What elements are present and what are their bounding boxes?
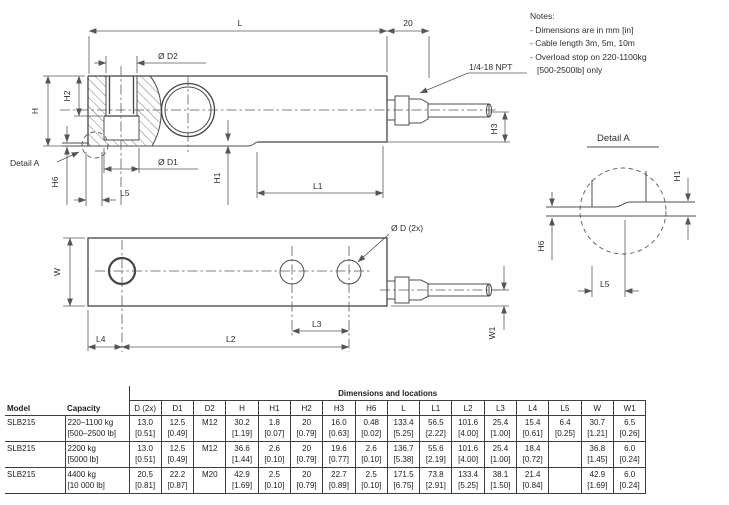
top-view: Ø D (2x) W L4 L2 L3 W1 (52, 223, 509, 352)
dim-label-W: W (52, 268, 62, 276)
value-cell: 36.6[1.44] (226, 442, 258, 468)
detail-a-title: Detail A (597, 133, 630, 144)
value-cell: 20[0.79] (290, 442, 322, 468)
dim-label-H3: H3 (489, 123, 499, 134)
column-header: D1 (161, 401, 193, 416)
value-cell: 20[0.79] (290, 468, 322, 494)
column-header: L1 (420, 401, 452, 416)
notes-title: Notes: (530, 10, 725, 24)
value-cell (549, 442, 581, 468)
column-header: W1 (613, 401, 645, 416)
value-cell: 73.8[2.91] (420, 468, 452, 494)
model-cell: SLB215 (5, 416, 65, 442)
value-cell: 13.0[0.51] (129, 416, 161, 442)
dim-label-W1: W1 (487, 326, 497, 339)
column-header: L (387, 401, 419, 416)
value-cell: 20[0.79] (290, 416, 322, 442)
column-header: L2 (452, 401, 484, 416)
dim-label-D2: Ø D2 (158, 51, 178, 61)
value-cell: 20.5[0.81] (129, 468, 161, 494)
value-cell (549, 468, 581, 494)
dim-label-L: L (238, 18, 243, 28)
value-cell: 1.8[0.07] (258, 416, 290, 442)
value-cell: M20 (194, 468, 226, 494)
npt-label: 1/4-18 NPT (469, 62, 512, 72)
value-cell: 171.5[6.75] (387, 468, 419, 494)
value-cell: 42.9[1.69] (226, 468, 258, 494)
detail-a-view: Detail A H1 H6 L5 (536, 133, 696, 297)
table-span-row: Dimensions and locations (5, 386, 646, 401)
capacity-cell: 2200 kg[5000 lb] (65, 442, 129, 468)
value-cell: 22.7[0.89] (323, 468, 355, 494)
column-header: H (226, 401, 258, 416)
dim-label-D2x: Ø D (2x) (391, 223, 423, 233)
dim-label-L2: L2 (226, 334, 236, 344)
cable-gland-side (387, 96, 492, 125)
note-line: [500-2500lb] only (530, 64, 725, 78)
dim-label-H6: H6 (50, 176, 60, 187)
detail-boundary-circle (580, 168, 666, 254)
detail-dim-label-H6: H6 (536, 240, 546, 251)
value-cell: 6.0[0.24] (613, 468, 645, 494)
value-cell: 133.4[5.25] (387, 416, 419, 442)
value-cell: 6.0[0.24] (613, 442, 645, 468)
column-header: H6 (355, 401, 387, 416)
dim-label-20: 20 (403, 18, 413, 28)
value-cell: M12 (194, 442, 226, 468)
column-header: D (2x) (129, 401, 161, 416)
span-spacer (5, 386, 129, 401)
value-cell: 30.2[1.19] (226, 416, 258, 442)
note-line: - Cable length 3m, 5m, 10m (530, 37, 725, 51)
side-view: L 20 Ø D2 H H2 H6 L5 Ø D1 (10, 18, 527, 206)
column-header: H1 (258, 401, 290, 416)
column-header: H3 (323, 401, 355, 416)
dim-label-D1: Ø D1 (158, 157, 178, 167)
notes-block: Notes: - Dimensions are in mm [in] - Cab… (530, 10, 725, 78)
model-cell: SLB215 (5, 442, 65, 468)
value-cell: 21.4[0.84] (517, 468, 549, 494)
value-cell: 136.7[5.38] (387, 442, 419, 468)
dim-label-H2: H2 (62, 90, 72, 101)
note-line: - Dimensions are in mm [in] (530, 24, 725, 38)
engineering-drawing-page: L 20 Ø D2 H H2 H6 L5 Ø D1 (0, 0, 729, 505)
detail-a-reference-label: Detail A (10, 158, 40, 168)
value-cell: 6.5[0.26] (613, 416, 645, 442)
value-cell: 12.5[0.49] (161, 442, 193, 468)
dim-label-L1: L1 (313, 181, 323, 191)
value-cell: 133.4[5.25] (452, 468, 484, 494)
span-header: Dimensions and locations (129, 386, 646, 401)
value-cell: 42.9[1.69] (581, 468, 613, 494)
value-cell: 16.0[0.63] (323, 416, 355, 442)
table-row: SLB215 4400 kg[10 000 lb]20.5[0.81]22.2[… (5, 468, 646, 494)
value-cell: 6.4[0.25] (549, 416, 581, 442)
value-cell: 101.6[4.00] (452, 442, 484, 468)
value-cell: 2.5[0.10] (258, 468, 290, 494)
value-cell: 101.6[4.00] (452, 416, 484, 442)
value-cell: 36.8[1.45] (581, 442, 613, 468)
column-header: L5 (549, 401, 581, 416)
detail-dim-label-L5: L5 (600, 279, 610, 289)
value-cell: 38.1[1.50] (484, 468, 516, 494)
detail-dim-label-H1: H1 (672, 170, 682, 181)
table-row: SLB215 220–1100 kg[500–2500 lb]13.0[0.51… (5, 416, 646, 442)
value-cell: 19.6[0.77] (323, 442, 355, 468)
column-header: H2 (290, 401, 322, 416)
column-header: L4 (517, 401, 549, 416)
note-line: - Overload stop on 220-1100kg (530, 51, 725, 65)
value-cell: 13.0[0.51] (129, 442, 161, 468)
dim-label-L4: L4 (96, 334, 106, 344)
dim-label-H1: H1 (212, 172, 222, 183)
dim-label-L5: L5 (120, 188, 130, 198)
value-cell: M12 (194, 416, 226, 442)
column-header: W (581, 401, 613, 416)
value-cell: 0.48[0.02] (355, 416, 387, 442)
value-cell: 15.4[0.61] (517, 416, 549, 442)
table-header-row: ModelCapacityD (2x)D1D2HH1H2H3H6LL1L2L3L… (5, 401, 646, 416)
value-cell: 25.4[1.00] (484, 442, 516, 468)
dim-label-H: H (30, 108, 40, 114)
value-cell: 55.6[2.19] (420, 442, 452, 468)
dim-label-L3: L3 (312, 319, 322, 329)
value-cell: 2.5[0.10] (355, 468, 387, 494)
capacity-cell: 4400 kg[10 000 lb] (65, 468, 129, 494)
value-cell: 25.4[1.00] (484, 416, 516, 442)
model-cell: SLB215 (5, 468, 65, 494)
column-header: L3 (484, 401, 516, 416)
value-cell: 12.5[0.49] (161, 416, 193, 442)
value-cell: 2.6[0.10] (258, 442, 290, 468)
table-row: SLB215 2200 kg[5000 lb]13.0[0.51]12.5[0.… (5, 442, 646, 468)
column-header: D2 (194, 401, 226, 416)
capacity-cell: 220–1100 kg[500–2500 lb] (65, 416, 129, 442)
column-header: Capacity (65, 401, 129, 416)
value-cell: 56.5[2.22] (420, 416, 452, 442)
dimensions-table: Dimensions and locations ModelCapacityD … (5, 386, 646, 494)
value-cell: 22.2[0.87] (161, 468, 193, 494)
column-header: Model (5, 401, 65, 416)
value-cell: 30.7[1.21] (581, 416, 613, 442)
value-cell: 2.6[0.10] (355, 442, 387, 468)
value-cell: 18.4[0.72] (517, 442, 549, 468)
